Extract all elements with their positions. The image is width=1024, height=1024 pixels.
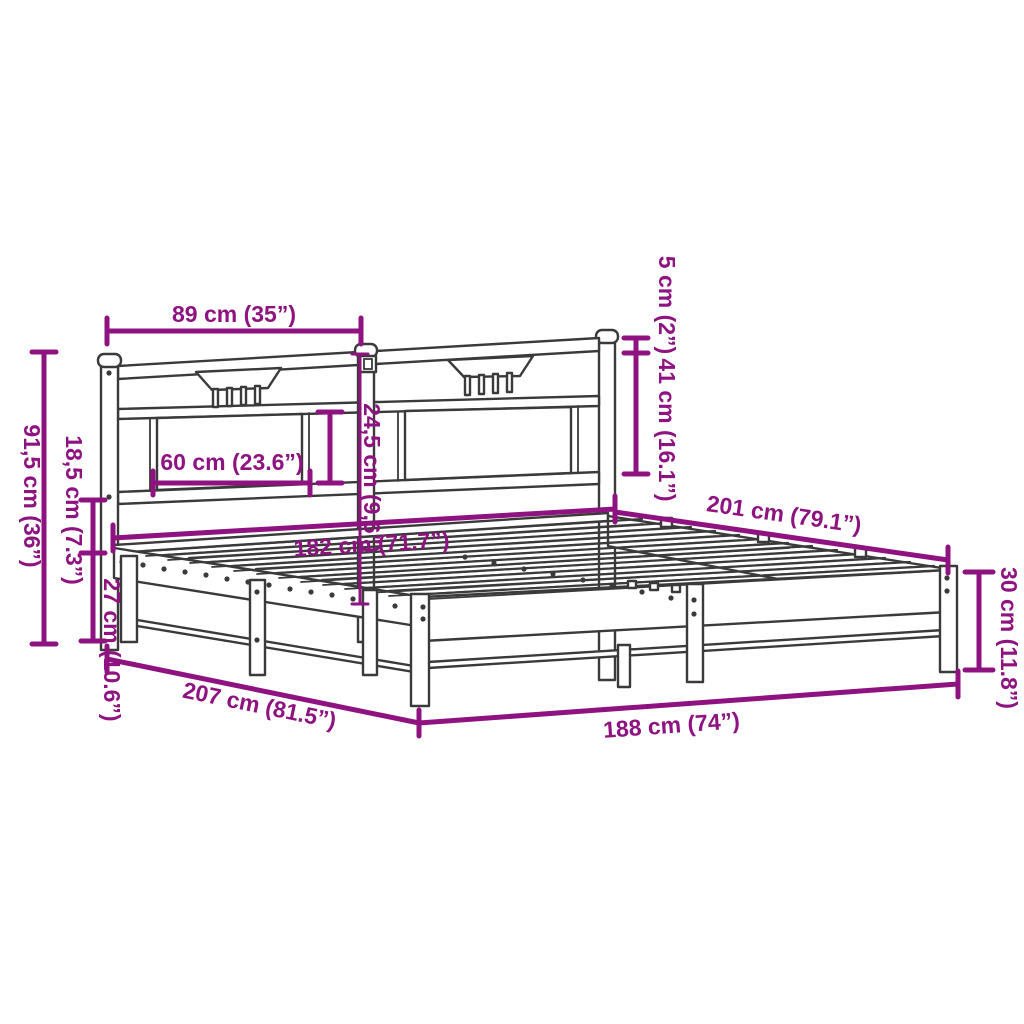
headboard-bracket-left [196, 368, 281, 407]
dim-label-headboard-section-width: 89 cm (35”) [172, 301, 296, 327]
headboard-panel-right [398, 406, 578, 481]
dim-label-headboard-upper-height: 41 cm (16.1”) [654, 358, 680, 501]
dim-label-frame-rail-height: 18,5 cm (7.3”) [61, 435, 87, 585]
bed-frame-dimension-diagram: 89 cm (35”) 5 cm (2”) 41 cm (16.1”) 24,5… [0, 0, 1024, 1024]
dim-headboard-total-height: 91,5 cm (36”) [19, 352, 56, 644]
dim-label-total-length: 207 cm (81.5”) [181, 677, 339, 734]
dim-label-underbed-clearance: 27 cm (10.6”) [99, 578, 125, 721]
dim-cap-and-upper-height: 5 cm (2”) 41 cm (16.1”) [624, 256, 680, 502]
dim-label-post-cap-height: 5 cm (2”) [654, 256, 680, 354]
diagram-canvas: 89 cm (35”) 5 cm (2”) 41 cm (16.1”) 24,5… [0, 0, 1024, 1024]
dim-headboard-section-width: 89 cm (35”) [107, 301, 361, 344]
leg-near-corner [411, 594, 429, 706]
headboard-bracket-right [448, 356, 533, 395]
dim-label-frame-side-height: 30 cm (11.8”) [996, 567, 1022, 709]
dim-label-headboard-panel-width: 60 cm (23.6”) [160, 449, 303, 475]
bed-platform [114, 513, 948, 673]
leg-foot-right-corner [940, 566, 957, 672]
headboard-post-left-cap [98, 354, 121, 367]
dim-label-total-width: 188 cm (74”) [602, 707, 740, 743]
leg-center-foot [618, 645, 630, 687]
dim-label-headboard-total-height: 91,5 cm (36”) [19, 424, 45, 567]
dim-frame-side-height: 30 cm (11.8”) [965, 567, 1022, 709]
